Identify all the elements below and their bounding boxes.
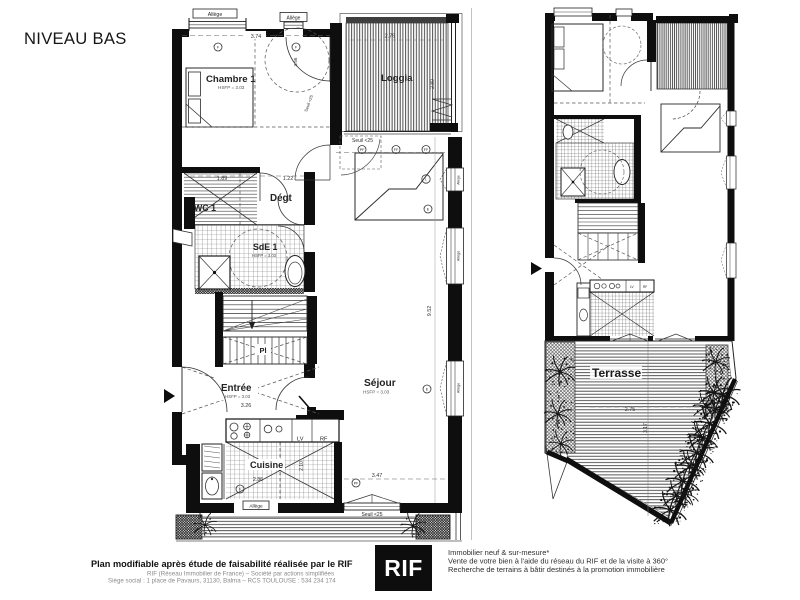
svg-text:3.26: 3.26: [241, 403, 252, 409]
svg-text:Allège: Allège: [457, 251, 461, 262]
svg-text:Terrasse: Terrasse: [592, 366, 641, 380]
svg-text:2.80: 2.80: [430, 79, 436, 89]
svg-text:RIF (Réseau Immobilier de Fran: RIF (Réseau Immobilier de France) – Soci…: [147, 571, 334, 578]
svg-text:LV: LV: [297, 437, 304, 443]
svg-text:Allège: Allège: [457, 383, 461, 394]
svg-text:Cuisine: Cuisine: [250, 460, 283, 470]
svg-text:Allège: Allège: [287, 15, 301, 21]
svg-text:HSFP = 3.03: HSFP = 3.03: [225, 394, 251, 399]
svg-text:Pl: Pl: [259, 346, 266, 355]
svg-text:Séjour: Séjour: [364, 378, 396, 389]
svg-text:Allège: Allège: [208, 12, 223, 18]
svg-text:HSFP = 3.03: HSFP = 3.03: [252, 253, 277, 258]
svg-text:2.86: 2.86: [253, 477, 263, 483]
svg-text:Allège: Allège: [457, 175, 461, 185]
svg-text:1.22: 1.22: [283, 176, 294, 182]
svg-text:3.74: 3.74: [251, 34, 262, 40]
svg-text:Recherche de terrains à bâtir: Recherche de terrains à bâtir destinés à…: [448, 565, 665, 574]
svg-text:NIVEAU BAS: NIVEAU BAS: [24, 29, 127, 48]
svg-text:Entrée: Entrée: [221, 383, 252, 394]
svg-text:3.47: 3.47: [372, 473, 383, 479]
svg-text:Loggia: Loggia: [381, 73, 413, 84]
svg-text:Seuil <25: Seuil <25: [352, 138, 373, 144]
svg-text:1.89: 1.89: [217, 176, 228, 182]
svg-text:Siège social : 1 place de Pava: Siège social : 1 place de Pavaurs, 31130…: [108, 578, 336, 585]
svg-text:HSFP = 3.03: HSFP = 3.03: [363, 390, 390, 395]
svg-text:Plan modifiable après étude de: Plan modifiable après étude de faisabili…: [91, 559, 353, 569]
svg-text:RF: RF: [643, 285, 647, 289]
svg-text:2.10: 2.10: [299, 461, 305, 471]
svg-text:WC 1: WC 1: [194, 203, 216, 213]
svg-text:Chambre 1: Chambre 1: [206, 74, 256, 85]
svg-text:PF: PF: [354, 481, 359, 485]
svg-text:RF: RF: [320, 437, 328, 443]
svg-text:2.75: 2.75: [625, 407, 636, 413]
svg-text:Allège: Allège: [249, 504, 263, 510]
svg-text:PF: PF: [360, 148, 365, 152]
svg-text:L: L: [425, 178, 427, 182]
svg-text:HSFP = 3.03: HSFP = 3.03: [218, 85, 245, 90]
svg-text:RIF: RIF: [384, 555, 423, 581]
svg-text:Dégt: Dégt: [270, 193, 293, 204]
svg-text:9.52: 9.52: [427, 306, 433, 317]
svg-text:2.79: 2.79: [385, 34, 396, 40]
svg-text:SdE 1: SdE 1: [253, 242, 278, 252]
